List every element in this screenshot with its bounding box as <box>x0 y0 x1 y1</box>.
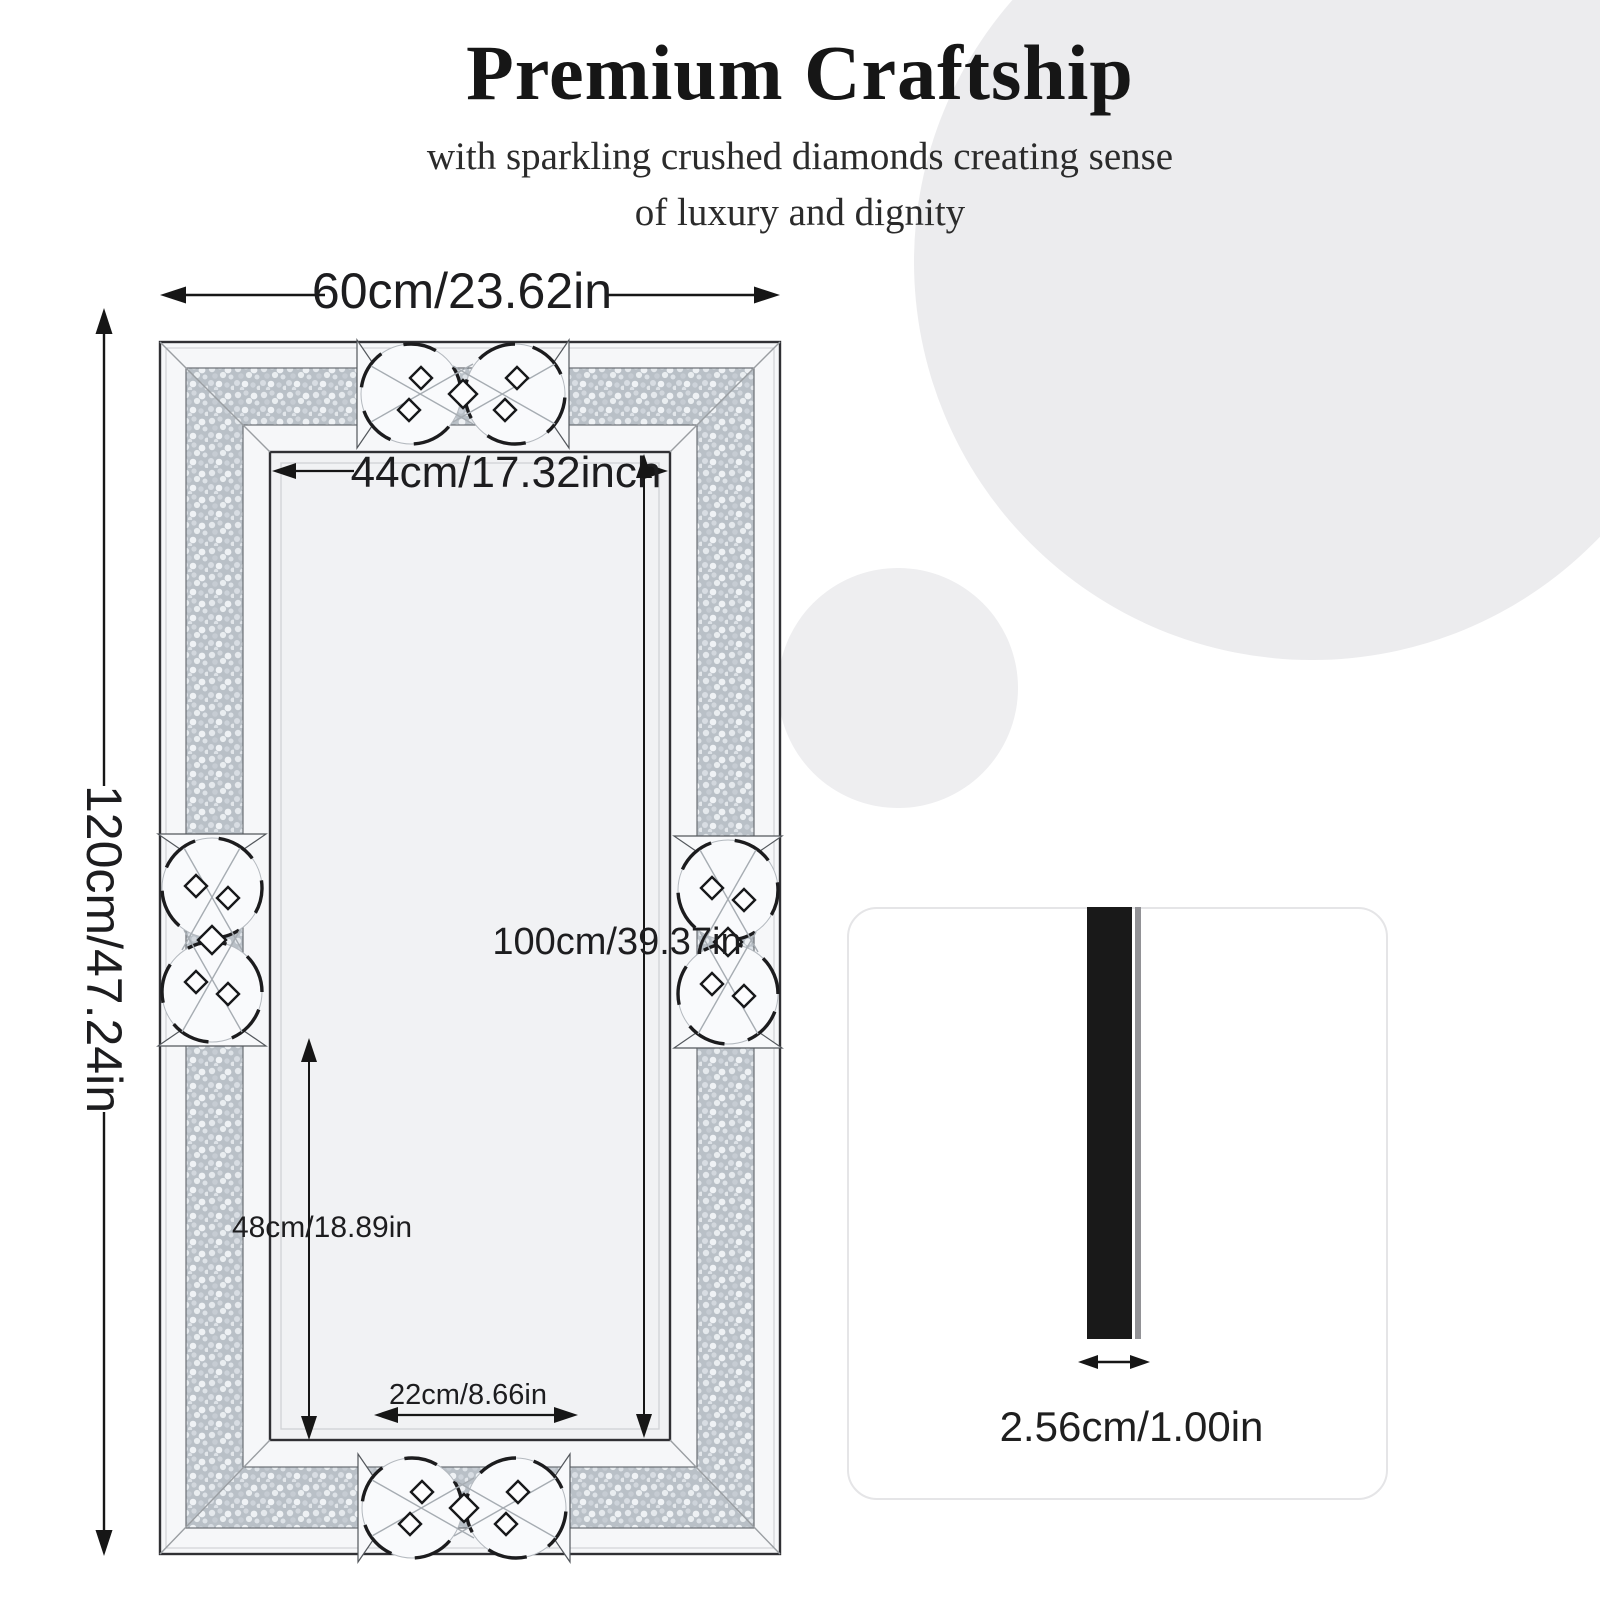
side-view-mirror-strip <box>1135 907 1141 1339</box>
infographic-canvas: Premium Craftship with sparkling crushed… <box>0 0 1600 1600</box>
thickness-card: 2.56cm/1.00in <box>847 907 1388 1500</box>
outer-width-label: 60cm/23.62in <box>312 263 612 319</box>
thickness-arrow-icon <box>1076 1351 1152 1373</box>
arrowhead-right-icon <box>754 287 780 304</box>
inner-height-label: 100cm/39.37in <box>492 921 741 963</box>
side-view-bar <box>1087 907 1132 1339</box>
arrowhead-down-icon <box>96 1530 113 1556</box>
outer-height-label: 120cm/47.24in <box>76 785 132 1113</box>
bottom-inner-width-label: 22cm/8.66in <box>389 1379 547 1411</box>
lower-inner-height-label: 48cm/18.89in <box>232 1211 412 1244</box>
dim-outer-width: 60cm/23.62in <box>160 263 780 319</box>
arrowhead-up-icon <box>96 308 113 334</box>
arrowhead-left-icon <box>160 287 186 304</box>
inner-width-label: 44cm/17.32inch <box>351 448 662 497</box>
thickness-label: 2.56cm/1.00in <box>849 1403 1386 1451</box>
dim-outer-height: 120cm/47.24in <box>76 308 132 1556</box>
